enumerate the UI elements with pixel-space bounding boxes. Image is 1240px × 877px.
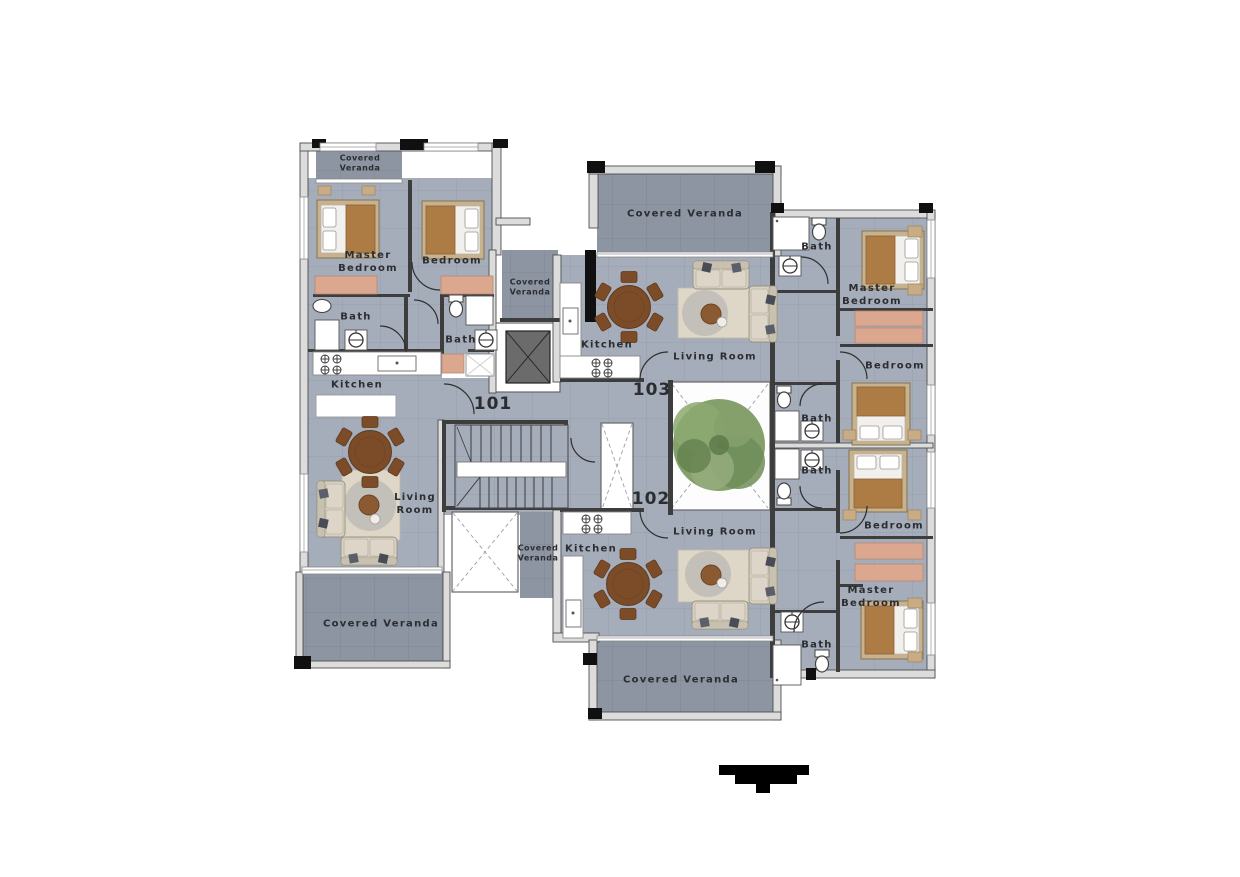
tree [673,399,765,491]
staircase [455,425,568,508]
elevator [506,331,550,383]
scale-marker [719,765,809,793]
floor-plan-page: Covered Veranda Master Bedroom Bedroom B… [0,0,1240,877]
floor-plan-drawing [0,0,1240,877]
